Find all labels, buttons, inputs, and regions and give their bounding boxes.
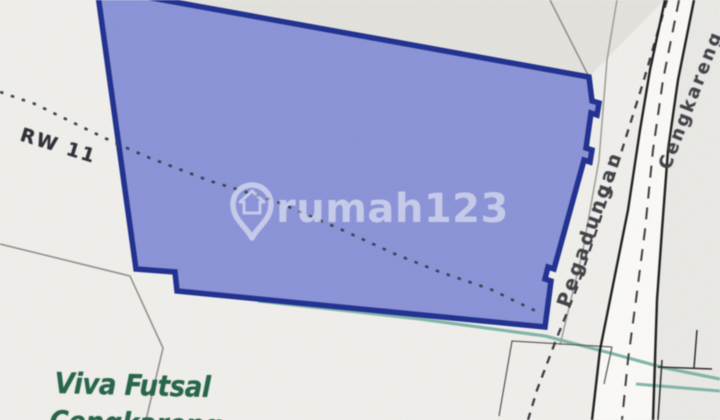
map-canvas: RW 11 Pegadungan Cengkareng Viva Futsal … [0,0,720,420]
watermark-brand-text: rumah123 [276,189,509,229]
poi-label-viva-futsal: Viva Futsal [54,366,211,404]
map-layers: RW 11 Pegadungan Cengkareng Viva Futsal … [0,0,720,420]
